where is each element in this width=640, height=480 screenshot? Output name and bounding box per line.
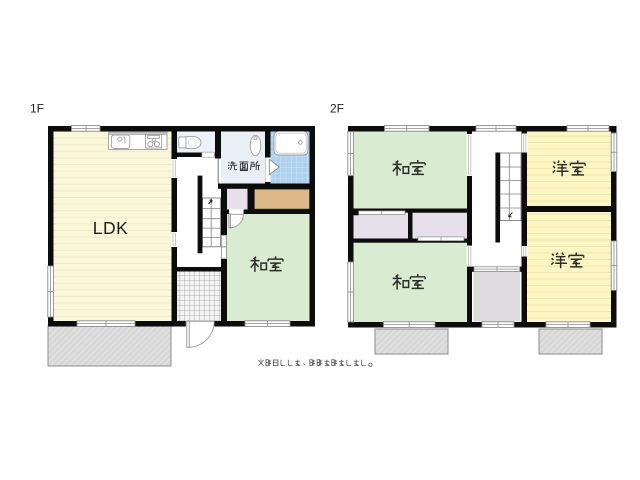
svg-text:LDK: LDK — [93, 218, 129, 238]
svg-text:1F: 1F — [30, 102, 44, 116]
svg-text:2F: 2F — [330, 102, 344, 116]
